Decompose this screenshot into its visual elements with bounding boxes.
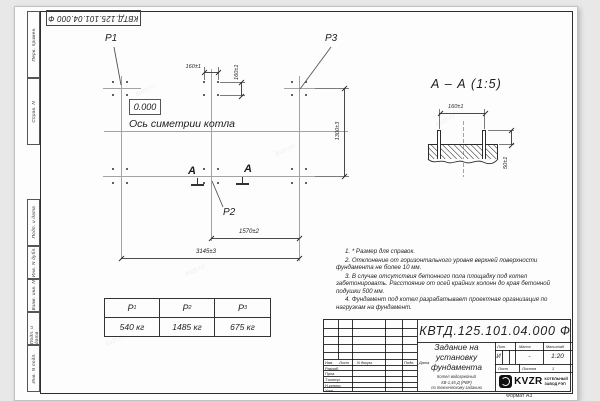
tb-logo-area: KVZR КОТЕЛЬНЫЙ ЗАВОД РЭП — [496, 372, 571, 391]
anchor-bolt-left — [437, 130, 441, 161]
note-2: 2. Отклонение от горизонтального уровня … — [336, 257, 574, 272]
tb-grid — [324, 336, 417, 337]
load-header-sub: 1 — [134, 305, 137, 311]
kvzr-org-line2: ЗАВОД РЭП — [545, 382, 568, 387]
tb-grid — [324, 344, 417, 345]
dim-text-160-section: 160±1 — [448, 104, 464, 110]
drawing-sheet-view: { "drawing": { "designation": "КВТД.125.… — [0, 0, 600, 400]
tb-sheet-label: Лист — [498, 366, 508, 371]
tb-col-izm: Изм. — [325, 360, 333, 365]
paper-sheet: kvzr.ru kvzr.ru kvzr.ru kvzr.ru kvzr.ru … — [14, 6, 578, 401]
tb-sheets-label: Листов — [522, 366, 536, 371]
tb-mass-header: Масса — [519, 344, 531, 349]
technical-notes: 1. * Размер для справок. 2. Отклонение о… — [336, 248, 574, 313]
tb-scale-header: Масштаб — [546, 344, 564, 349]
load-header-p1: P1 — [105, 299, 160, 318]
tb-sheets-value: 1 — [552, 366, 554, 371]
tb-grid — [324, 328, 417, 329]
load-header-sub: 2 — [189, 305, 192, 311]
load-header-p2: P2 — [160, 299, 215, 318]
tb-row-nkontr: Н.контр. — [325, 383, 341, 388]
tb-grid — [352, 320, 353, 391]
tb-product-line3: по техническому заданию — [431, 385, 482, 391]
tb-grid — [519, 364, 520, 372]
kvzr-org-name: КОТЕЛЬНЫЙ ЗАВОД РЭП — [545, 377, 568, 386]
tb-col-podp: Подп. — [404, 360, 414, 365]
load-header-p3: P3 — [215, 299, 270, 318]
load-table: P1 P2 P3 540 кг 1485 кг 675 кг — [104, 298, 271, 337]
tb-row-prov: Пров. — [325, 371, 335, 376]
note-3: 3. В случае отсутствия бетонного пола пл… — [336, 273, 574, 296]
tb-col-doc: N докум. — [357, 360, 373, 365]
tb-designation-text: КВТД.125.101.04.000 Ф — [419, 324, 571, 338]
load-header-sub: 3 — [244, 305, 247, 311]
tb-grid — [502, 350, 503, 365]
note-1: 1. * Размер для справок. — [336, 248, 574, 256]
anchor-bolt-right — [482, 130, 486, 161]
tb-col-list: Лист — [339, 360, 349, 365]
tb-grid — [509, 350, 510, 365]
tb-lit-value: И — [495, 350, 502, 365]
load-value-p2: 1485 кг — [160, 318, 215, 337]
tb-row-tkontr: Т.контр. — [325, 377, 341, 382]
title-block: Изм. Лист N докум. Подп. Дата Разраб. Пр… — [323, 319, 571, 392]
tb-lit-header: Лит. — [497, 344, 506, 349]
format-label: Формат А3 — [506, 393, 532, 399]
tb-row-razrab: Разраб. — [325, 366, 339, 371]
tb-grid — [338, 320, 339, 359]
tb-grid — [324, 352, 417, 353]
tb-title-cell: Задание на установку фундамента — [418, 343, 495, 373]
dim-line-160-section — [439, 113, 485, 114]
load-value-p1: 540 кг — [105, 318, 160, 337]
tb-grid — [402, 320, 403, 391]
dim-text-50: 50±1 — [503, 149, 511, 169]
tb-scale-value: 1:20 — [544, 350, 571, 365]
load-value-p3: 675 кг — [215, 318, 270, 337]
tb-designation-cell: КВТД.125.101.04.000 Ф — [418, 320, 572, 342]
tb-product-cell: Котел водогрейный КВ-1,45 Д (РВР) по тех… — [418, 374, 495, 391]
tb-grid — [385, 320, 386, 391]
note-4: 4. Фундамент под котел разрабатывает про… — [336, 296, 574, 311]
kvzr-logo-swirl — [501, 377, 510, 386]
kvzr-logo-text: KVZR — [514, 376, 542, 387]
section-title: А – А (1:5) — [431, 77, 502, 91]
kvzr-logo-icon — [499, 375, 512, 388]
tb-mass-value: - — [516, 350, 543, 365]
tb-row-utv: Утв. — [325, 388, 334, 393]
